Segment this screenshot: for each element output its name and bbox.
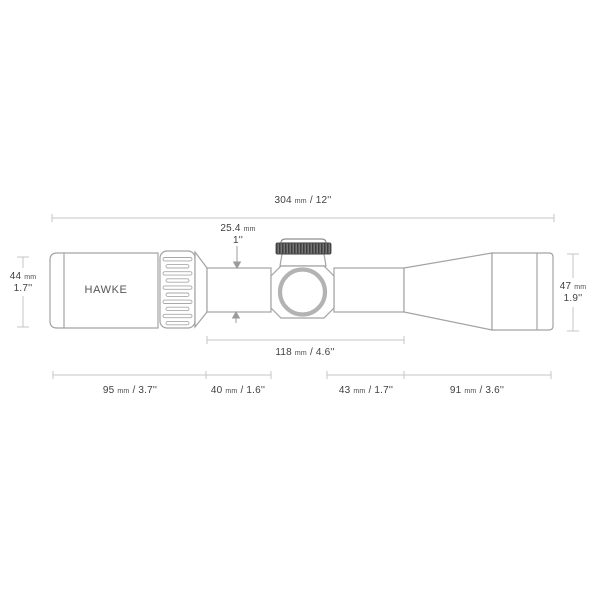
- dim-label-objective-diameter: 47 mm1.9'': [560, 282, 587, 304]
- dim-label-rear-tube-section: 40 mm / 1.6'': [211, 386, 265, 398]
- dim-label-overall-length: 304 mm / 12'': [274, 196, 331, 208]
- dim-label-front-tube-section: 43 mm / 1.7'': [339, 386, 393, 398]
- rear-tube: [207, 268, 271, 312]
- objective-bell: [492, 253, 553, 330]
- arrow-up-icon: [233, 312, 240, 318]
- hawke-logo: HAWKE: [85, 284, 128, 296]
- scope-drawing: [0, 0, 600, 600]
- dim-line-mounting-length: [207, 336, 404, 344]
- dim-label-mounting-length: 118 mm / 4.6'': [275, 348, 334, 360]
- dim-line-overall-length: [52, 214, 554, 222]
- scope-dimension-diagram: HAWKE 304 mm / 12'' 25.4 mm1'' 44 mm1.7'…: [0, 0, 600, 600]
- turret-cap-neck: [280, 254, 326, 266]
- dim-label-objective-section: 91 mm / 3.6'': [450, 386, 504, 398]
- dim-label-eyepiece-section: 95 mm / 3.7'': [103, 386, 157, 398]
- turret-cap-top: [281, 239, 326, 243]
- dim-label-eyepiece-diameter: 44 mm1.7'': [10, 272, 37, 294]
- side-turret-circle: [280, 270, 325, 315]
- front-tube: [334, 268, 404, 312]
- dim-label-tube-diameter: 25.4 mm1'': [220, 224, 255, 246]
- rear-taper-cone: [195, 252, 207, 327]
- turret-cap-grip: [276, 243, 331, 254]
- arrow-down-icon: [234, 262, 241, 268]
- dim-line-bottom-right: [327, 371, 551, 379]
- dim-line-bottom-left: [53, 371, 271, 379]
- objective-cone: [404, 253, 492, 330]
